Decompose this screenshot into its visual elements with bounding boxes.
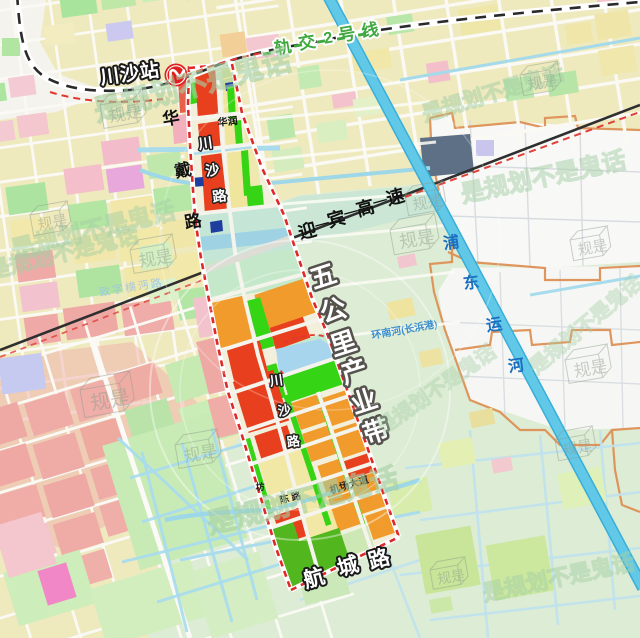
svg-text:川: 川 [268,372,284,389]
svg-text:河: 河 [507,355,526,376]
svg-text:浦: 浦 [442,232,461,253]
svg-text:沙: 沙 [204,161,220,179]
svg-text:戴: 戴 [173,159,193,182]
svg-text:川: 川 [196,134,213,152]
svg-text:东: 东 [462,272,481,293]
svg-text:线: 线 [360,19,380,42]
svg-text:交: 交 [297,31,317,54]
svg-text:运: 运 [485,315,503,335]
svg-text:号: 号 [337,24,357,46]
svg-text:坊: 坊 [255,481,264,492]
